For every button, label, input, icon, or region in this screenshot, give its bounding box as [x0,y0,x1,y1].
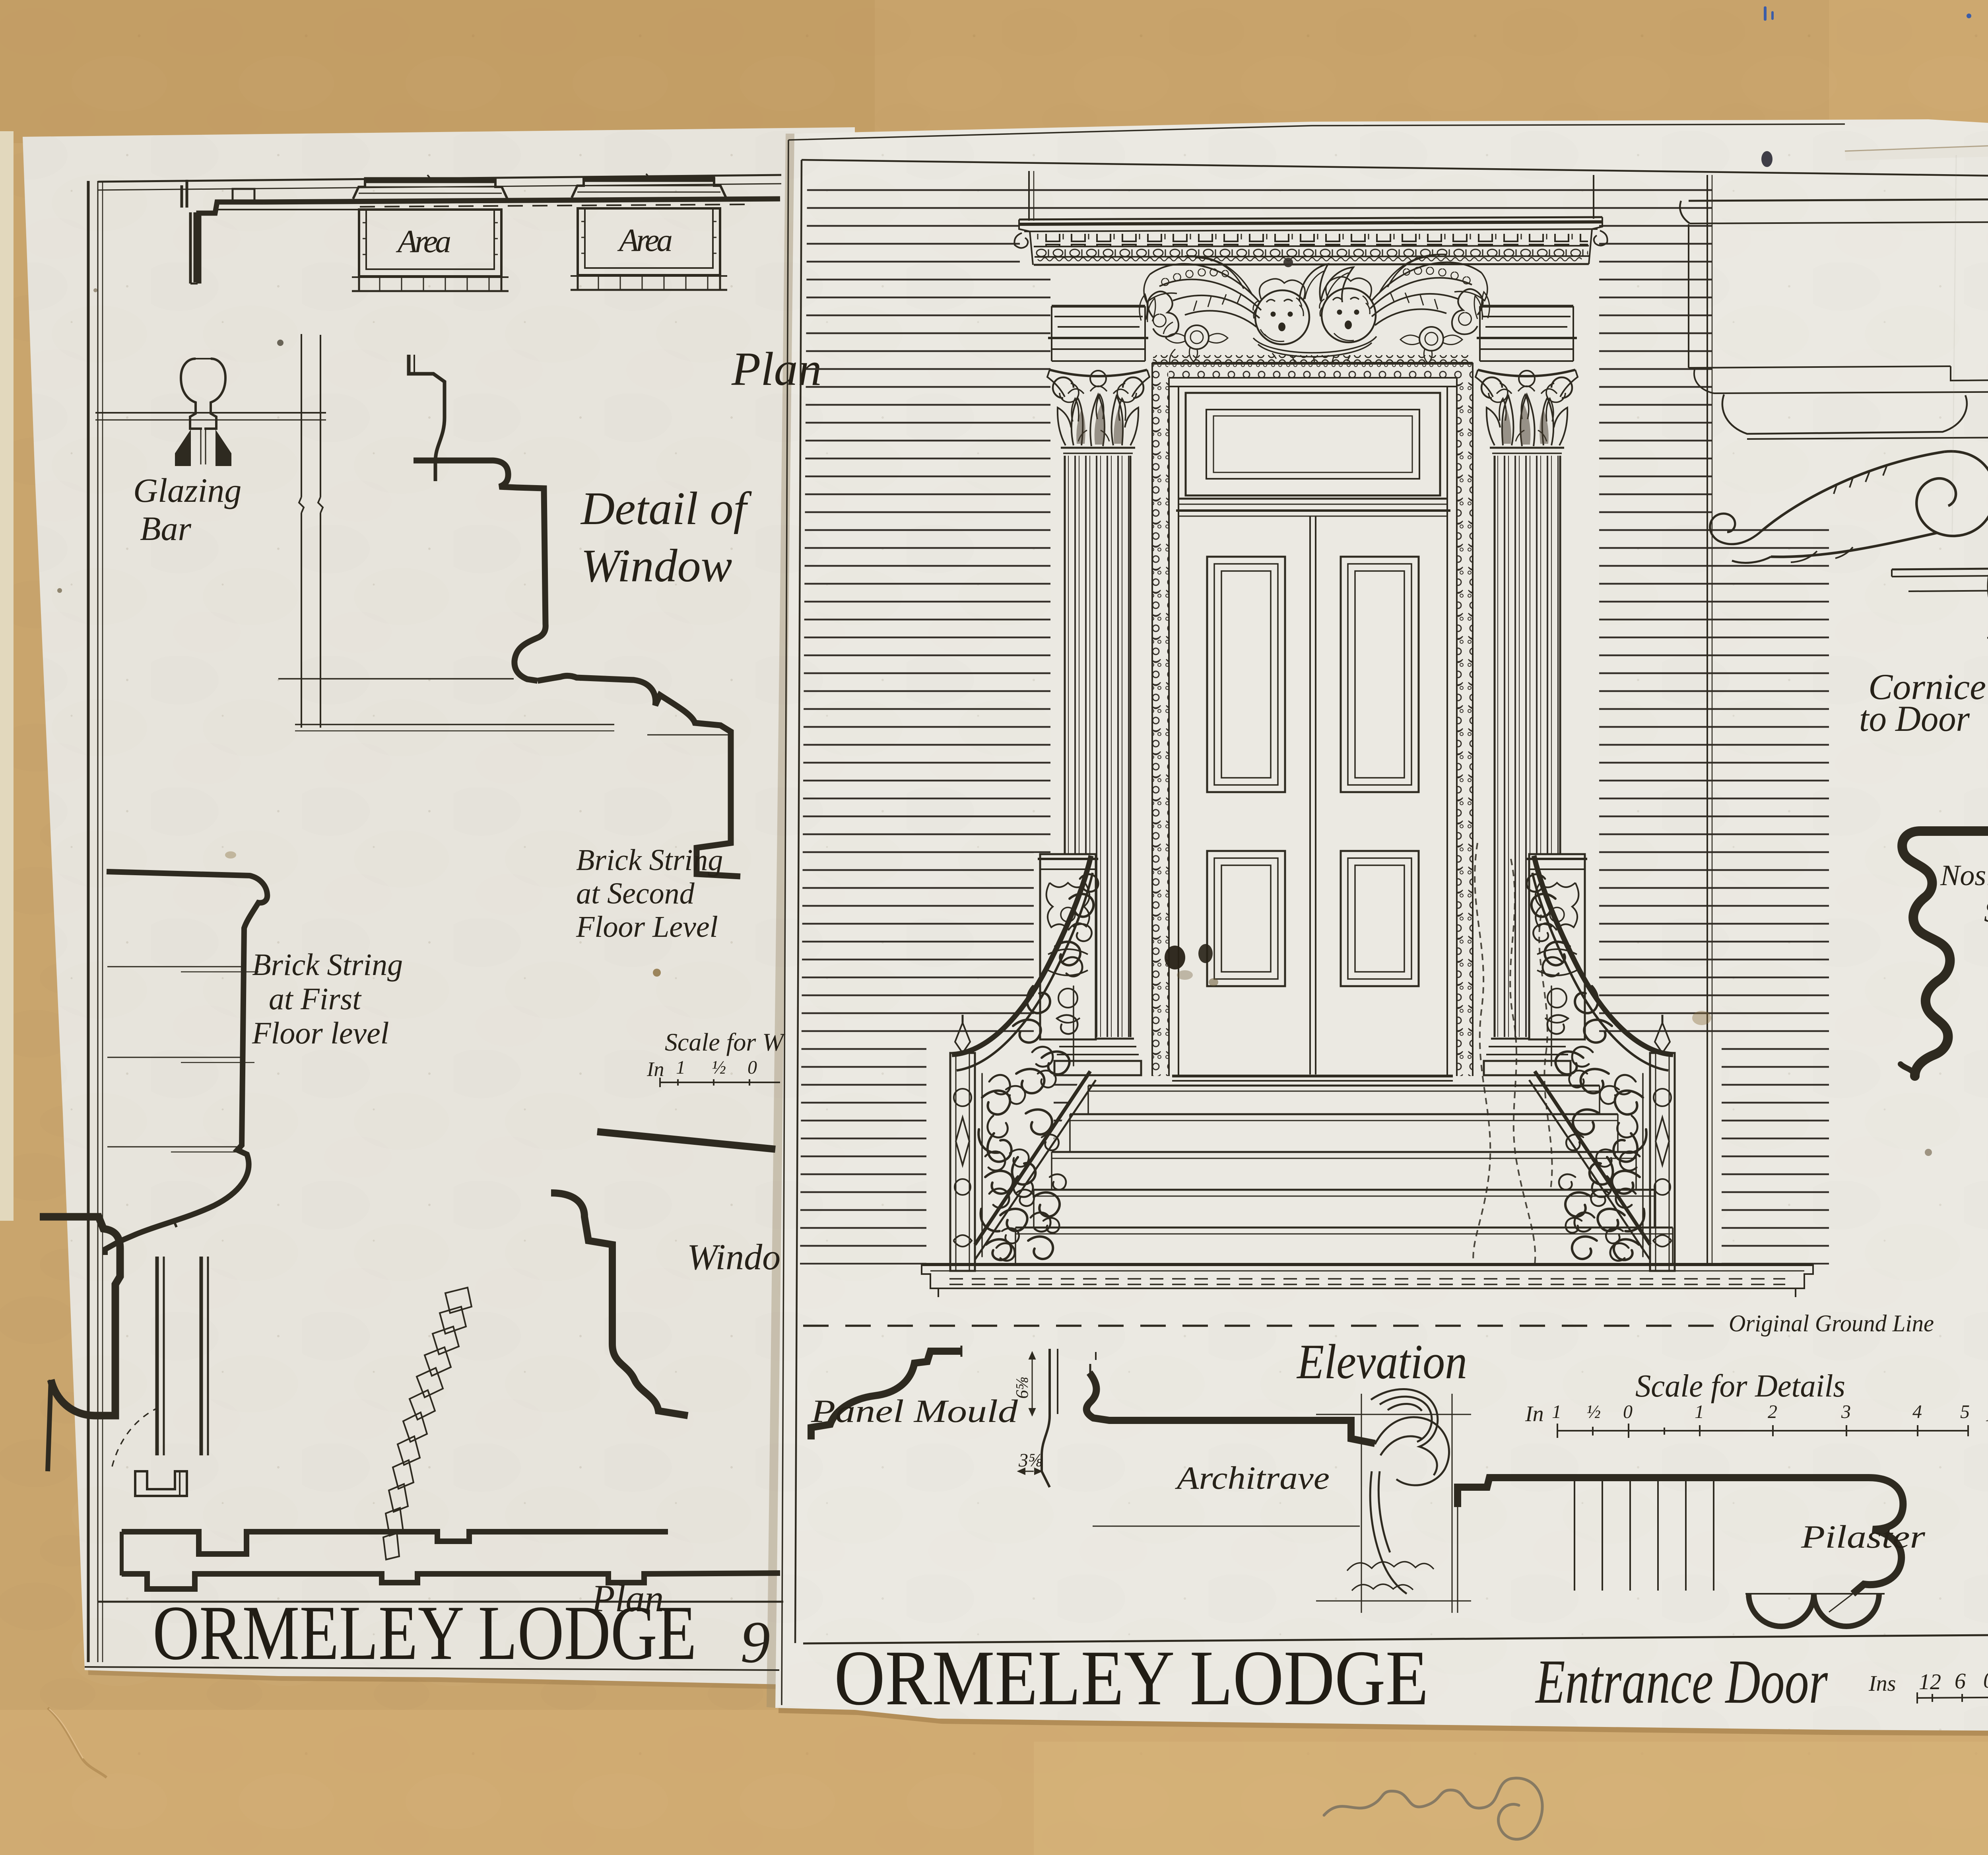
svg-text:ORMELEY LODGE: ORMELEY LODGE [153,1590,697,1676]
svg-text:Panel Mould: Panel Mould [811,1393,1018,1429]
svg-text:½: ½ [712,1057,726,1078]
svg-text:Floor level: Floor level [252,1016,389,1050]
svg-text:6⅝: 6⅝ [1012,1377,1032,1399]
svg-text:In: In [1525,1402,1544,1426]
svg-text:Architrave: Architrave [1175,1460,1330,1496]
svg-text:Brick String: Brick String [576,843,723,877]
svg-text:1: 1 [676,1057,685,1078]
svg-text:Windo: Windo [687,1237,780,1277]
svg-text:1: 1 [1695,1401,1704,1422]
svg-text:Glazing: Glazing [133,471,241,509]
svg-text:5: 5 [1960,1401,1970,1422]
svg-text:Entrance Door: Entrance Door [1535,1647,1828,1717]
svg-text:Scale for W: Scale for W [665,1028,786,1056]
svg-text:Nosing to: Nosing to [1940,859,1988,892]
svg-text:Ins: Ins [1986,1403,1988,1426]
svg-text:Original Ground Line: Original Ground Line [1729,1310,1934,1336]
svg-text:Brick String: Brick String [252,947,403,982]
svg-text:9: 9 [740,1609,770,1675]
svg-text:½: ½ [1586,1401,1601,1422]
svg-text:Window: Window [581,540,732,592]
svg-text:0: 0 [747,1057,757,1078]
svg-text:6: 6 [1955,1669,1966,1694]
svg-text:Bar: Bar [140,509,192,548]
svg-text:Floor Level: Floor Level [576,910,718,944]
svg-text:12: 12 [1919,1670,1941,1694]
svg-text:0: 0 [1983,1668,1988,1693]
svg-text:Area: Area [396,223,451,259]
svg-text:Elevation: Elevation [1296,1334,1467,1389]
svg-text:Pilaster: Pilaster [1801,1519,1926,1555]
svg-text:4: 4 [1912,1401,1922,1422]
svg-text:to Door: to Door [1859,698,1970,739]
svg-text:1: 1 [1552,1401,1561,1422]
svg-text:0: 0 [1623,1401,1633,1422]
svg-text:ORMELEY LODGE: ORMELEY LODGE [834,1634,1429,1721]
svg-text:Ins: Ins [1868,1671,1896,1696]
svg-text:In: In [646,1058,664,1081]
svg-text:3: 3 [1841,1401,1851,1422]
svg-text:Steps: Steps [1984,896,1988,928]
svg-text:Scale for Details: Scale for Details [1635,1369,1845,1404]
svg-text:at Second: at Second [576,877,695,910]
svg-text:Detail of: Detail of [580,482,752,534]
svg-text:2: 2 [1768,1401,1777,1422]
svg-text:Area: Area [617,222,673,258]
svg-text:3⅝: 3⅝ [1018,1450,1043,1471]
svg-text:at First: at First [269,981,362,1016]
